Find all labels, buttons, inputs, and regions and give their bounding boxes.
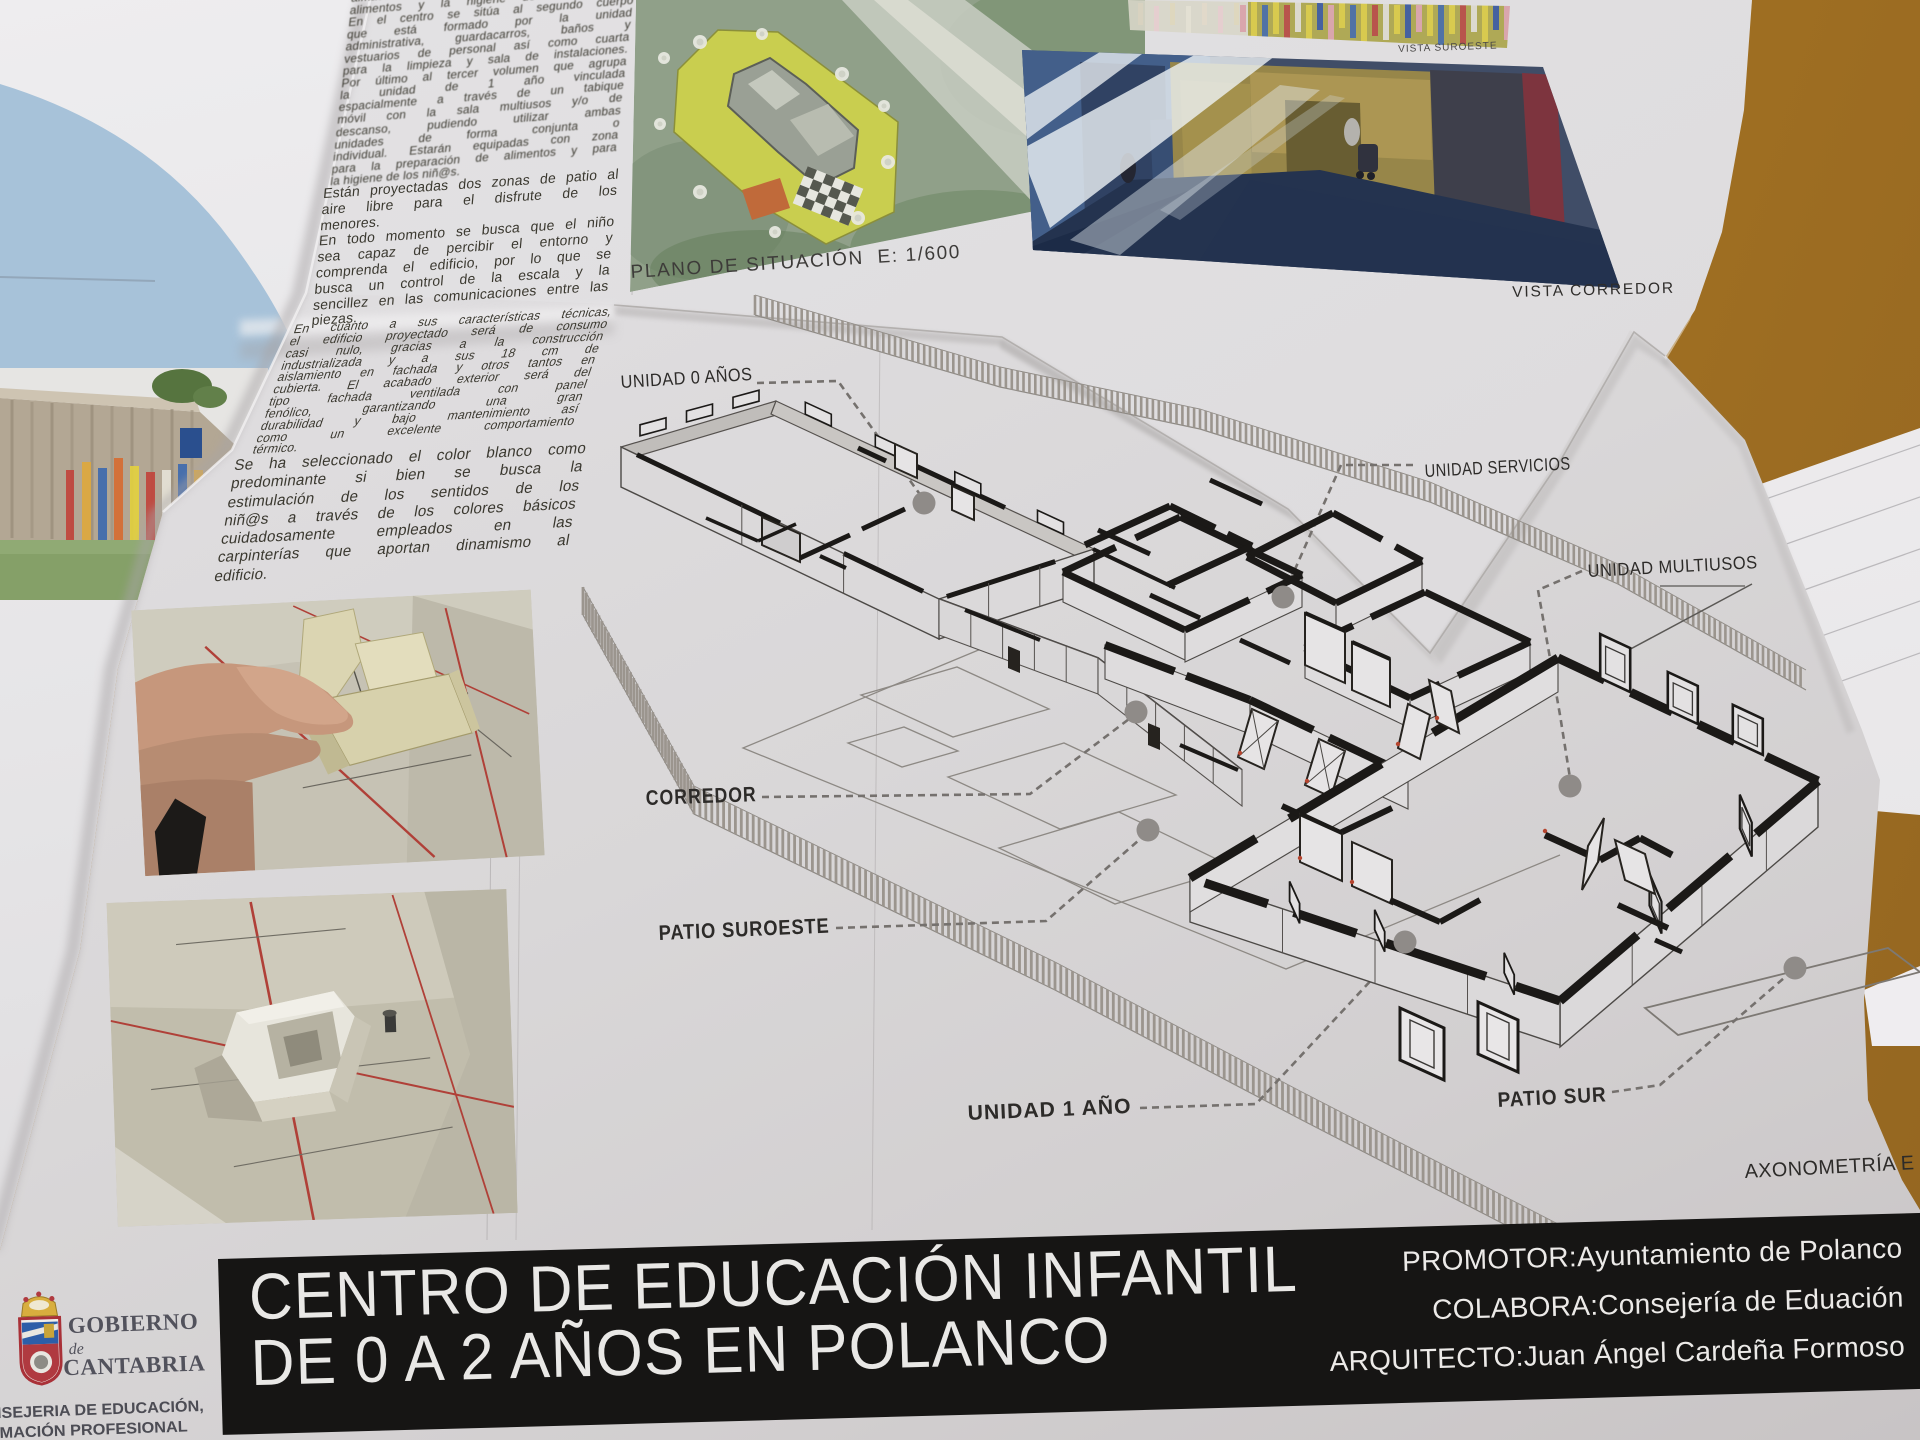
svg-text:CANTABRIA: CANTABRIA [63, 1350, 206, 1380]
svg-text:GOBIERNO: GOBIERNO [67, 1309, 198, 1339]
